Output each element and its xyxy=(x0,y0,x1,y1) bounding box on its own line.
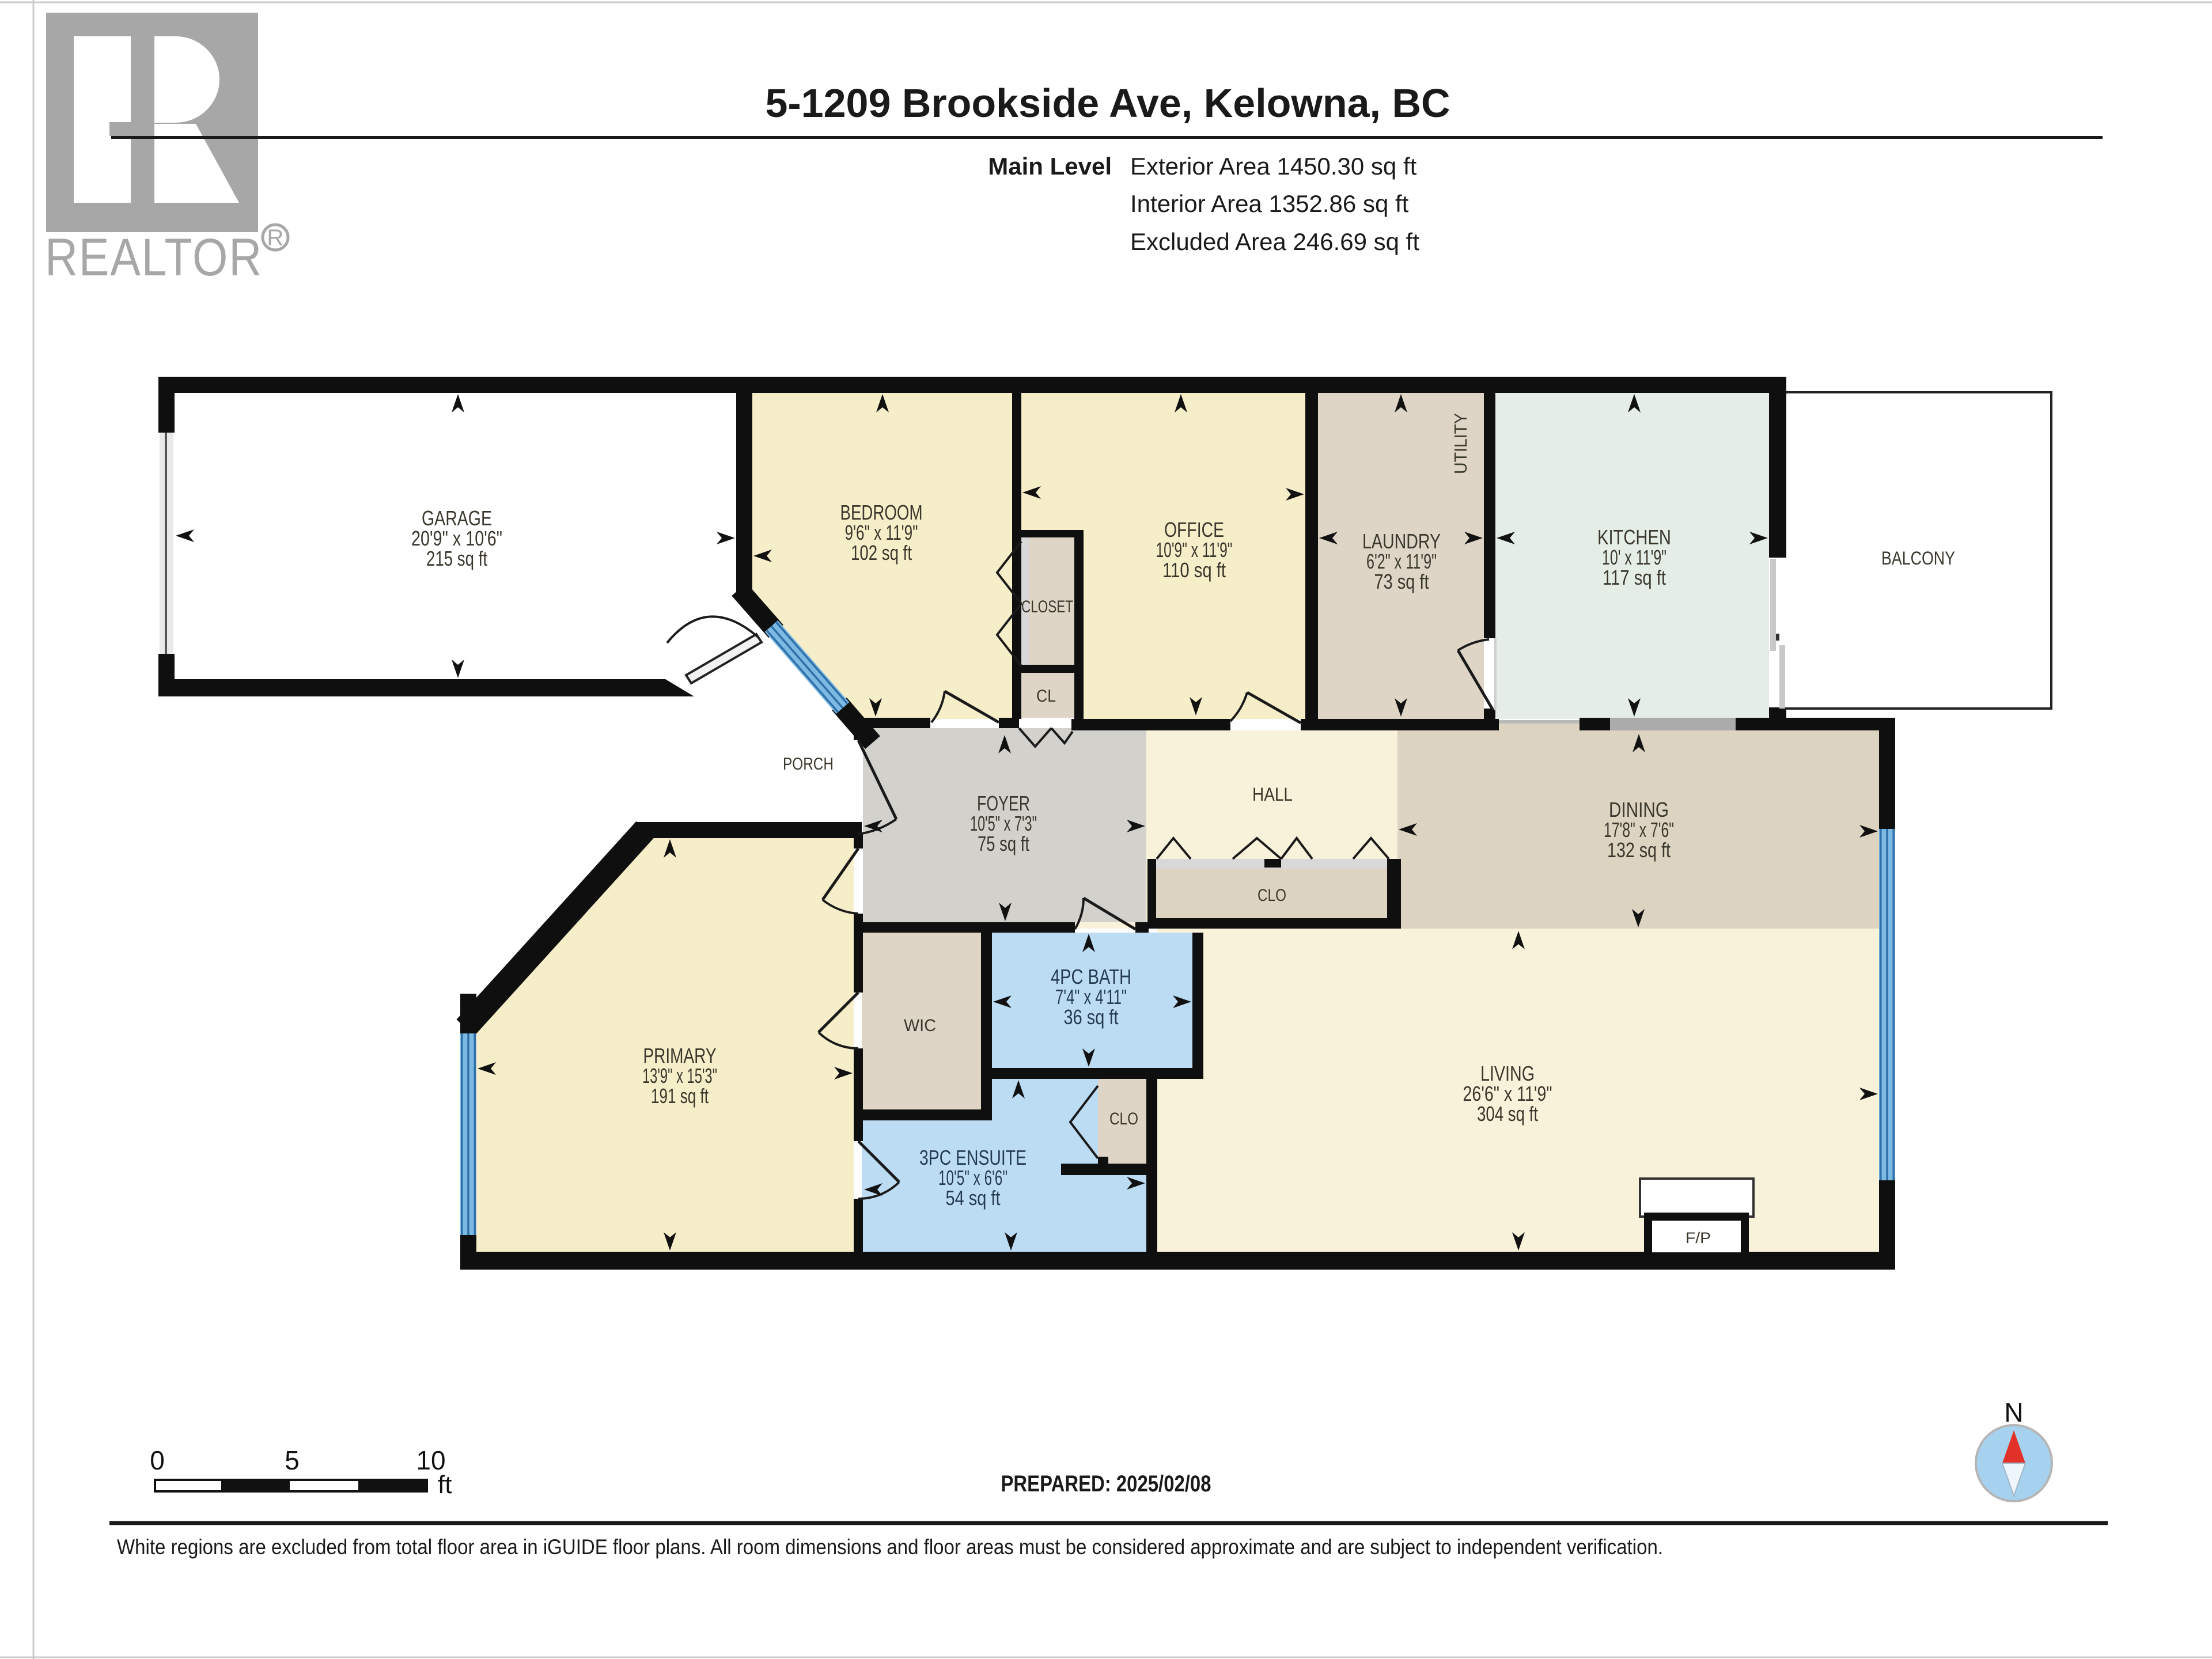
svg-text:73 sq ft: 73 sq ft xyxy=(1374,570,1429,593)
svg-text:ft: ft xyxy=(438,1471,452,1499)
svg-text:110 sq ft: 110 sq ft xyxy=(1162,558,1226,582)
svg-text:HALL: HALL xyxy=(1252,784,1293,805)
svg-text:BALCONY: BALCONY xyxy=(1881,548,1955,569)
svg-text:R: R xyxy=(267,225,284,251)
svg-text:Excluded Area 246.69 sq ft: Excluded Area 246.69 sq ft xyxy=(1130,228,1419,255)
svg-text:N: N xyxy=(2004,1397,2023,1427)
svg-text:REALTOR: REALTOR xyxy=(45,228,263,287)
svg-text:CLO: CLO xyxy=(1257,886,1286,905)
svg-text:White regions are excluded fro: White regions are excluded from total fl… xyxy=(117,1535,1663,1559)
svg-text:PREPARED: 2025/02/08: PREPARED: 2025/02/08 xyxy=(1001,1471,1211,1497)
svg-text:CL: CL xyxy=(1036,687,1056,706)
svg-text:117 sq ft: 117 sq ft xyxy=(1603,566,1666,589)
svg-text:Main Level: Main Level xyxy=(988,153,1112,180)
svg-text:191 sq ft: 191 sq ft xyxy=(651,1084,709,1108)
svg-text:304 sq ft: 304 sq ft xyxy=(1477,1102,1538,1126)
svg-text:215 sq ft: 215 sq ft xyxy=(426,547,487,570)
svg-text:WIC: WIC xyxy=(904,1016,936,1035)
svg-text:Exterior Area 1450.30 sq ft: Exterior Area 1450.30 sq ft xyxy=(1130,153,1417,180)
svg-text:PORCH: PORCH xyxy=(783,755,834,774)
svg-text:Interior Area 1352.86 sq ft: Interior Area 1352.86 sq ft xyxy=(1130,190,1409,217)
svg-text:UTILITY: UTILITY xyxy=(1450,413,1471,474)
svg-text:0: 0 xyxy=(150,1445,165,1475)
svg-text:F/P: F/P xyxy=(1685,1229,1711,1247)
svg-text:75 sq ft: 75 sq ft xyxy=(978,832,1029,855)
svg-text:CLO: CLO xyxy=(1109,1109,1138,1128)
svg-text:CLOSET: CLOSET xyxy=(1021,597,1073,616)
svg-text:5-1209 Brookside Ave, Kelowna,: 5-1209 Brookside Ave, Kelowna, BC xyxy=(765,81,1450,126)
svg-text:102 sq ft: 102 sq ft xyxy=(851,541,912,565)
svg-text:36 sq ft: 36 sq ft xyxy=(1064,1005,1119,1029)
svg-text:5: 5 xyxy=(285,1445,300,1475)
svg-text:132 sq ft: 132 sq ft xyxy=(1607,838,1671,862)
svg-text:54 sq ft: 54 sq ft xyxy=(946,1186,1001,1210)
